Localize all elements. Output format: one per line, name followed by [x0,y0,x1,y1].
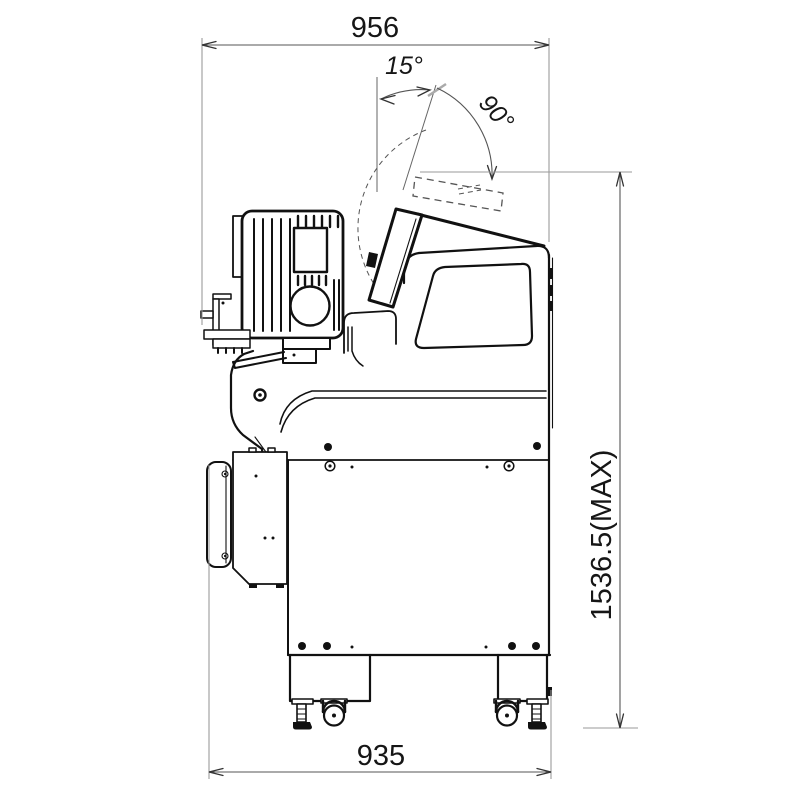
discharge-tray [233,352,286,368]
screw [324,443,332,451]
screw [508,642,516,650]
angle-dimension-90deg: 90° [428,84,519,179]
console-top-edge [419,246,549,258]
left-leg [290,655,370,701]
dimension-max-height: 1536.5(MAX) [420,172,638,728]
side-box-cover-plate [207,462,231,567]
right-leveling-foot [527,687,552,730]
table-edge-curve [280,391,546,432]
drawing-page: 15° 90° [0,0,800,800]
screw [323,642,331,650]
technical-drawing: 15° 90° [0,0,800,800]
display-hinge-tab [366,252,378,268]
side-box-attachment [207,448,287,588]
angle-dimension-15deg: 15° [377,52,436,192]
console-cover-edge [417,214,544,246]
base-legs [290,655,552,730]
display-raised-detail [458,185,481,194]
max-height-label: 1536.5(MAX) [586,450,618,621]
right-leg [498,655,547,701]
head-unit [201,211,343,368]
screw [298,642,306,650]
display-raised-outline [413,177,503,211]
top-width-label: 956 [351,12,399,44]
side-box [233,452,287,584]
head-mount-bracket [283,338,330,363]
right-caster [494,699,520,726]
machine-outline [201,209,553,730]
bottom-width-label: 935 [357,740,405,772]
console-unit [344,209,549,366]
left-caster [321,699,347,726]
screw [533,442,541,450]
console-screen-window [416,264,532,348]
tilted-reference-line [403,85,436,190]
tilt-angle-label: 15° [385,52,423,80]
head-window [294,228,327,272]
screw [532,642,540,650]
head-knob [291,287,330,326]
left-leveling-foot [292,699,313,730]
